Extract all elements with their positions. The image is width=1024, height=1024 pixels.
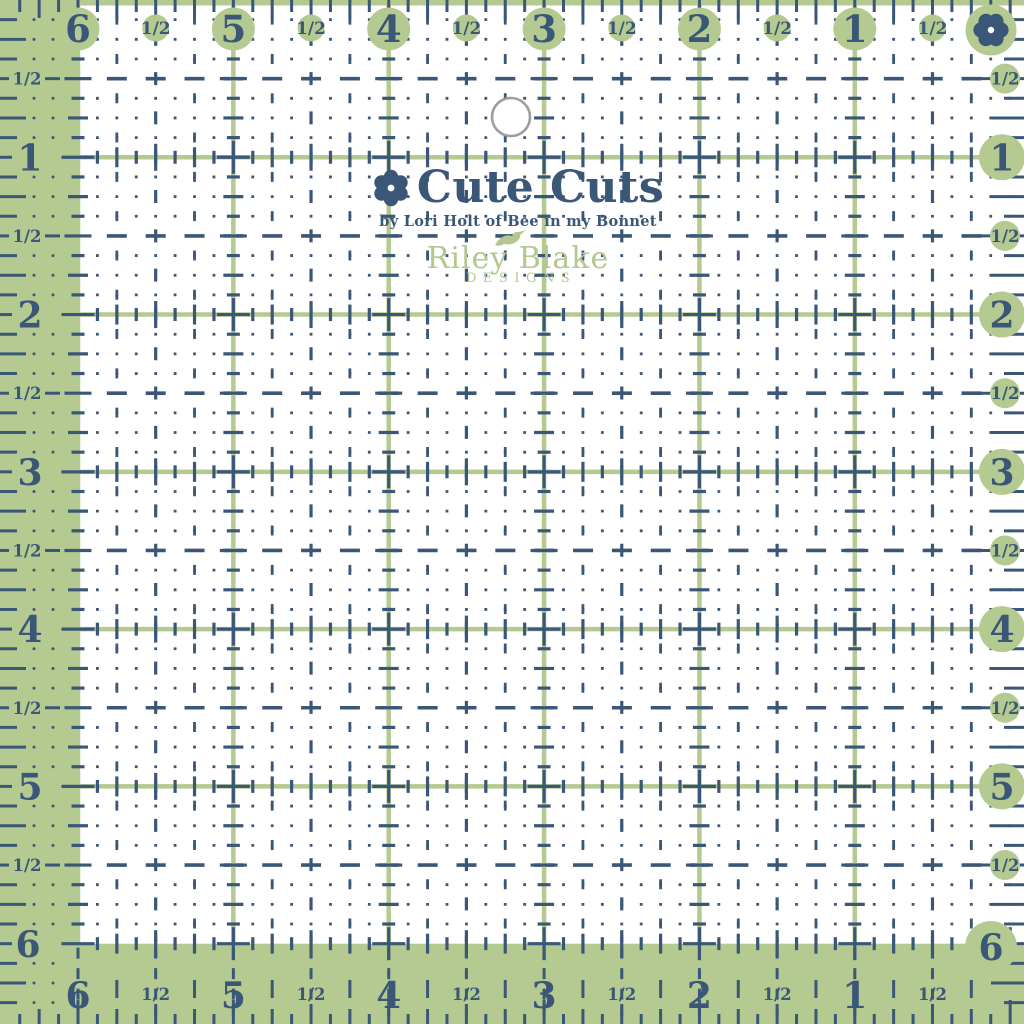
scale-label: 1/2 xyxy=(991,70,1020,89)
scale-label: 3 xyxy=(532,975,557,1017)
scale-label: 1/2 xyxy=(13,70,42,89)
scale-circles xyxy=(57,5,1024,974)
riley-blake-logo: Riley Blake DESIGNS xyxy=(348,244,688,286)
quilting-ruler: 61/251/241/231/221/211/261/251/241/231/2… xyxy=(0,0,1024,1024)
bottom-border-strip xyxy=(0,944,1024,1024)
scale-label: 3 xyxy=(531,7,557,51)
scale-label: 1/2 xyxy=(607,985,636,1004)
scale-label: 1/2 xyxy=(991,856,1020,875)
scale-label: 1/2 xyxy=(451,19,481,39)
scale-label: 6 xyxy=(978,927,1003,969)
scale-label: 6 xyxy=(65,7,91,51)
scale-label: 1/2 xyxy=(13,541,42,560)
cute-cuts-logo: Cute Cuts by Lori Holt of Bee in my Bonn… xyxy=(348,166,688,286)
scale-label: 1/2 xyxy=(13,699,42,718)
scale-label: 1/2 xyxy=(918,985,947,1004)
ruler-grid: 61/251/241/231/221/211/261/251/241/231/2… xyxy=(0,0,1024,1024)
scale-label: 1/2 xyxy=(991,699,1020,718)
scale-label: 4 xyxy=(989,609,1014,651)
flower-icon xyxy=(372,169,410,207)
scale-label: 1/2 xyxy=(13,227,42,246)
border-strips xyxy=(0,0,1024,1024)
scale-label: 1/2 xyxy=(13,384,42,403)
scale-label: 5 xyxy=(989,766,1014,808)
scale-label: 6 xyxy=(65,975,90,1017)
scale-label: 1 xyxy=(842,7,868,51)
top-border-edge xyxy=(0,0,1024,6)
scale-label: 1 xyxy=(842,975,867,1017)
scale-label: 1/2 xyxy=(762,19,792,39)
scale-label: 1/2 xyxy=(991,384,1020,403)
scale-label: 1/2 xyxy=(991,541,1020,560)
scale-label: 3 xyxy=(989,452,1014,494)
scale-label: 1/2 xyxy=(296,19,326,39)
scale-label: 5 xyxy=(220,7,246,51)
scale-label: 1/2 xyxy=(297,985,326,1004)
scale-label: 2 xyxy=(989,295,1014,337)
scale-label: 1/2 xyxy=(763,985,792,1004)
scale-label: 5 xyxy=(221,975,246,1017)
scale-label: 1/2 xyxy=(452,985,481,1004)
bird-icon xyxy=(492,229,532,251)
scale-label: 1/2 xyxy=(918,19,948,39)
scale-label: 6 xyxy=(15,924,40,966)
scale-label: 1/2 xyxy=(607,19,637,39)
scale-label: 1/2 xyxy=(13,856,42,875)
logo-title-row: Cute Cuts xyxy=(348,166,688,210)
scale-label: 3 xyxy=(17,452,42,494)
logo-subtitle: by Lori Holt of Bee in my Bonnet xyxy=(348,213,688,230)
logo-title: Cute Cuts xyxy=(417,166,664,210)
scale-label: 1/2 xyxy=(141,19,171,39)
scale-label: 1/2 xyxy=(141,985,170,1004)
scale-label: 2 xyxy=(17,295,42,337)
scale-label: 2 xyxy=(687,7,713,51)
scale-label: 1 xyxy=(17,137,42,179)
scale-label: 1/2 xyxy=(991,227,1020,246)
scale-label: 4 xyxy=(376,975,401,1017)
scale-label: 4 xyxy=(376,7,402,51)
hanging-hole xyxy=(492,98,530,136)
scale-label: 5 xyxy=(17,766,42,808)
scale-label: 2 xyxy=(687,975,712,1017)
scale-label: 4 xyxy=(17,609,42,651)
scale-label: 1 xyxy=(989,137,1014,179)
